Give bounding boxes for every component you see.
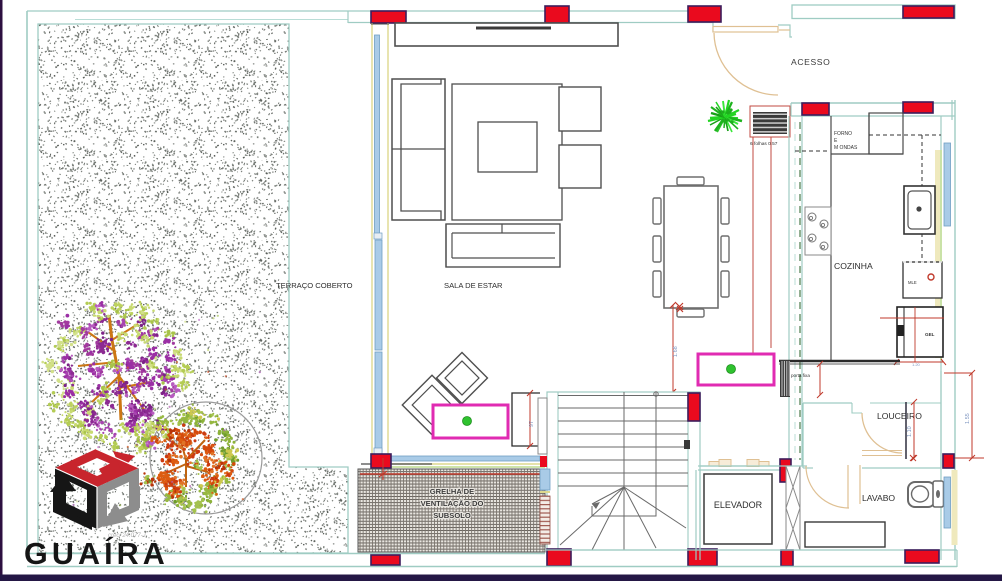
svg-text:1.68: 1.68	[673, 346, 679, 357]
svg-text:LAVABO: LAVABO	[862, 493, 895, 503]
svg-text:LOUCEIRO: LOUCEIRO	[877, 411, 922, 421]
svg-text:COZINHA: COZINHA	[834, 261, 873, 271]
svg-text:1.55: 1.55	[965, 413, 971, 424]
svg-text:1.20: 1.20	[912, 362, 921, 367]
svg-text:creci 24.077-J: creci 24.077-J	[108, 533, 147, 539]
svg-text:MLE: MLE	[908, 280, 917, 285]
svg-text:VENTILAÇÃO DO: VENTILAÇÃO DO	[421, 499, 484, 508]
svg-text:FORNO: FORNO	[834, 131, 852, 137]
svg-text:TERRAÇO COBERTO: TERRAÇO COBERTO	[276, 281, 353, 290]
svg-text:GEL: GEL	[925, 332, 935, 337]
svg-text:SALA DE ESTAR: SALA DE ESTAR	[444, 281, 503, 290]
svg-text:porta fixa: porta fixa	[791, 373, 810, 378]
svg-text:97: 97	[529, 421, 535, 427]
svg-text:ACESSO: ACESSO	[791, 57, 830, 67]
svg-text:ELEVADOR: ELEVADOR	[714, 500, 763, 510]
svg-text:1.10: 1.10	[907, 426, 913, 437]
svg-text:GRELHA DE: GRELHA DE	[430, 487, 474, 496]
svg-text:GUAÍRA: GUAÍRA	[24, 536, 169, 571]
svg-text:SUBSOLO: SUBSOLO	[433, 511, 471, 520]
svg-text:M ONDAS: M ONDAS	[834, 145, 858, 151]
svg-text:6 folhas 0.57: 6 folhas 0.57	[750, 141, 778, 147]
